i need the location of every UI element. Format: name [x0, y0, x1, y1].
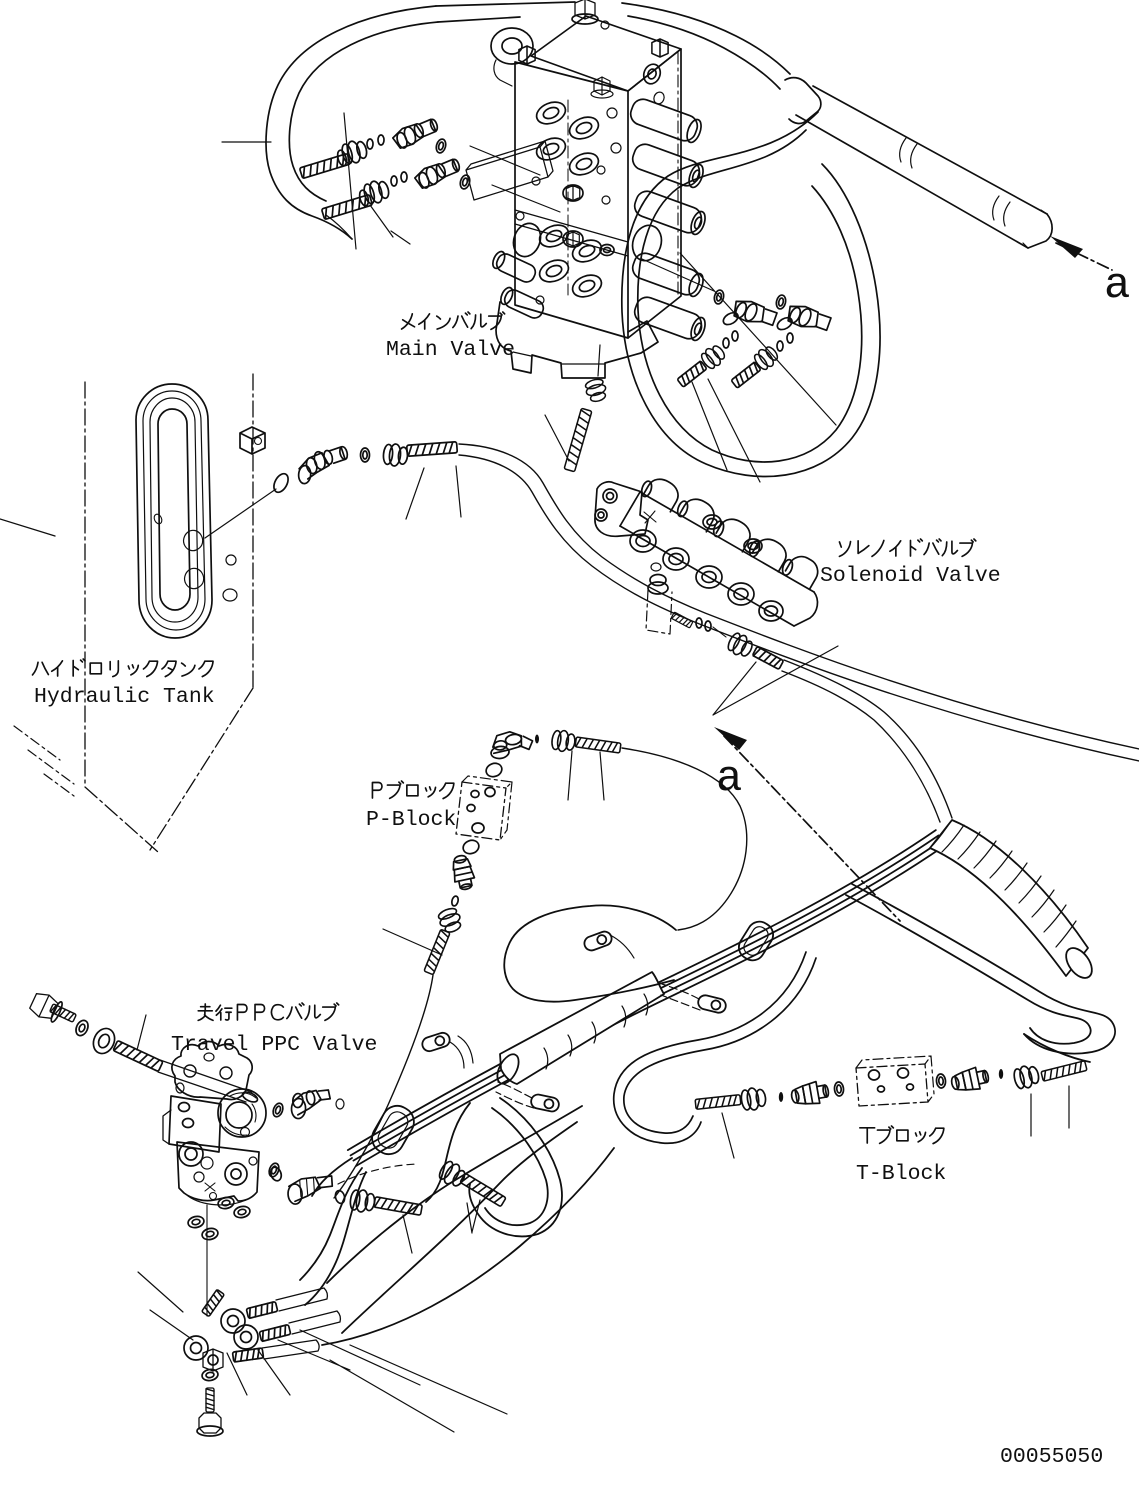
- svg-text:T-Block: T-Block: [856, 1162, 946, 1186]
- svg-text:Hydraulic Tank: Hydraulic Tank: [34, 685, 215, 709]
- svg-text:P-Block: P-Block: [366, 808, 456, 832]
- svg-text:Solenoid Valve: Solenoid Valve: [820, 564, 1001, 588]
- svg-text:Main Valve: Main Valve: [386, 338, 515, 362]
- svg-text:Travel PPC Valve: Travel PPC Valve: [171, 1033, 377, 1057]
- svg-text:a: a: [716, 754, 742, 804]
- svg-text:00055050: 00055050: [1000, 1445, 1103, 1469]
